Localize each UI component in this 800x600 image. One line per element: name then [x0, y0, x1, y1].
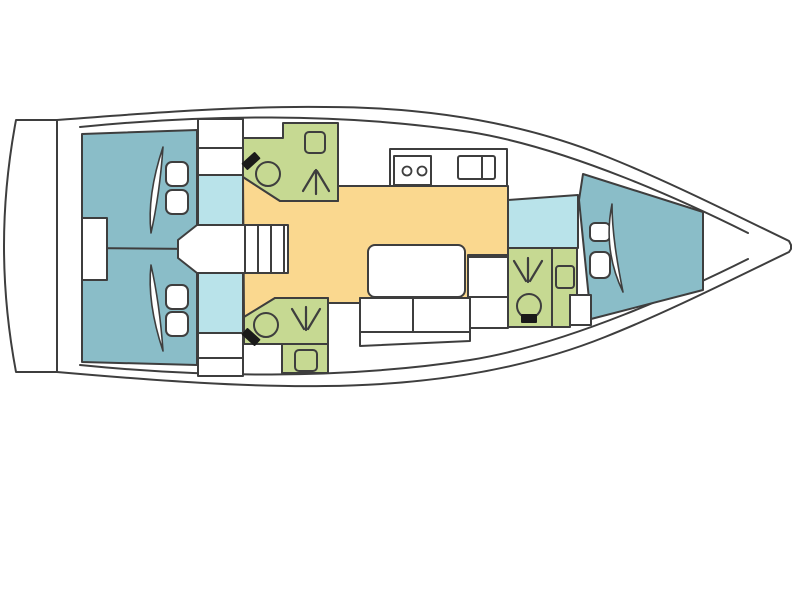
- settee-cushion: [360, 298, 413, 332]
- pillow-icon: [590, 252, 610, 278]
- wardrobe-starboard: [198, 271, 243, 333]
- sink-icon: [305, 132, 325, 153]
- salon-table: [368, 245, 465, 297]
- locker: [198, 119, 243, 148]
- settee-cushion: [413, 298, 470, 332]
- nav-seat: [468, 257, 508, 297]
- nav-seat: [468, 297, 508, 328]
- galley: [390, 149, 507, 186]
- burner-icon: [418, 167, 427, 176]
- forward-wardrobe: [508, 195, 578, 248]
- toilet-icon: [256, 162, 280, 186]
- forward-wardrobe-floor: [508, 195, 578, 248]
- locker: [198, 358, 243, 376]
- pillow-icon: [166, 312, 188, 336]
- forward-head: [508, 248, 577, 327]
- sink-icon: [295, 350, 317, 371]
- locker: [198, 148, 243, 175]
- toilet-cistern-icon: [521, 314, 537, 323]
- wardrobe-port: [198, 175, 243, 225]
- pillow-icon: [166, 285, 188, 309]
- yacht-floor-plan: [0, 0, 800, 600]
- sink-icon: [556, 266, 574, 288]
- pillow-icon: [590, 223, 610, 241]
- galley-sink-icon: [458, 156, 495, 179]
- v-berth-step: [570, 295, 591, 325]
- pillow-icon: [166, 162, 188, 186]
- companionway: [178, 225, 288, 273]
- aft-cabin-center-locker: [82, 218, 107, 280]
- floor-plan-canvas: [0, 0, 800, 600]
- locker: [198, 333, 243, 358]
- toilet-icon: [254, 313, 278, 337]
- burner-icon: [403, 167, 412, 176]
- pillow-icon: [166, 190, 188, 214]
